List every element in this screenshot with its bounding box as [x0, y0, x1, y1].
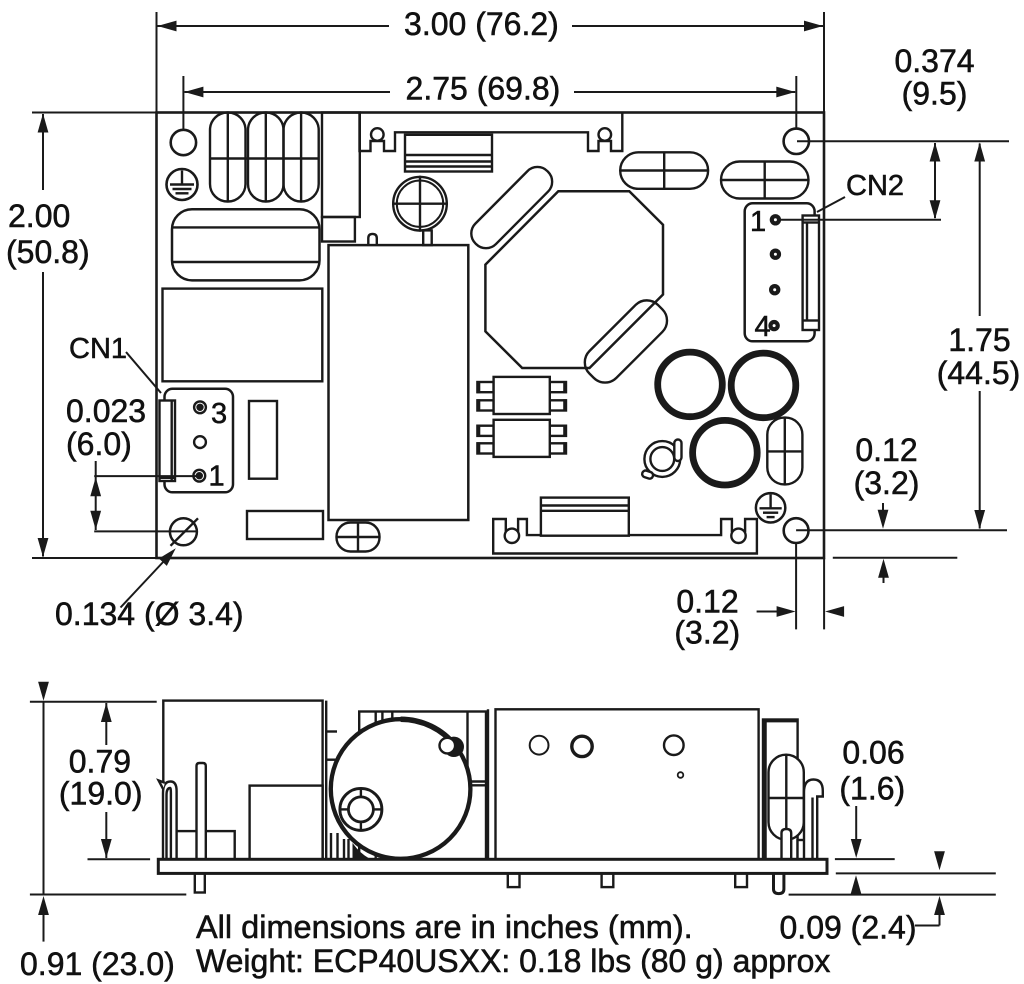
svg-text:0.134 (Ø 3.4): 0.134 (Ø 3.4)	[55, 596, 244, 632]
svg-text:0.374: 0.374	[894, 43, 974, 79]
svg-text:0.79: 0.79	[69, 744, 131, 780]
svg-text:3.00 (76.2): 3.00 (76.2)	[404, 6, 559, 42]
svg-text:(6.0): (6.0)	[66, 426, 132, 462]
svg-text:(1.6): (1.6)	[839, 771, 905, 807]
svg-text:0.06: 0.06	[842, 735, 904, 771]
svg-text:3: 3	[211, 398, 227, 430]
svg-text:(3.2): (3.2)	[854, 465, 920, 501]
svg-text:All dimensions are in inches (: All dimensions are in inches (mm).	[196, 909, 693, 945]
svg-text:4: 4	[755, 311, 771, 343]
svg-text:0.12: 0.12	[855, 432, 917, 468]
svg-text:(3.2): (3.2)	[674, 615, 740, 651]
svg-text:(9.5): (9.5)	[902, 76, 968, 112]
svg-text:1: 1	[750, 206, 766, 238]
svg-text:(44.5): (44.5)	[937, 355, 1021, 391]
svg-text:(19.0): (19.0)	[59, 776, 143, 812]
svg-text:2.00: 2.00	[8, 198, 70, 234]
svg-text:2.75 (69.8): 2.75 (69.8)	[406, 71, 561, 107]
svg-text:1: 1	[209, 461, 225, 493]
svg-text:0.09 (2.4): 0.09 (2.4)	[780, 910, 917, 946]
svg-text:CN1: CN1	[69, 333, 127, 365]
svg-text:(50.8): (50.8)	[6, 234, 90, 270]
svg-text:1.75: 1.75	[948, 322, 1010, 358]
svg-text:Weight: ECP40USXX: 0.18 lbs (8: Weight: ECP40USXX: 0.18 lbs (80 g) appro…	[196, 943, 830, 979]
svg-text:CN2: CN2	[846, 170, 904, 202]
svg-text:0.023: 0.023	[66, 393, 146, 429]
svg-text:0.91 (23.0): 0.91 (23.0)	[20, 946, 175, 982]
